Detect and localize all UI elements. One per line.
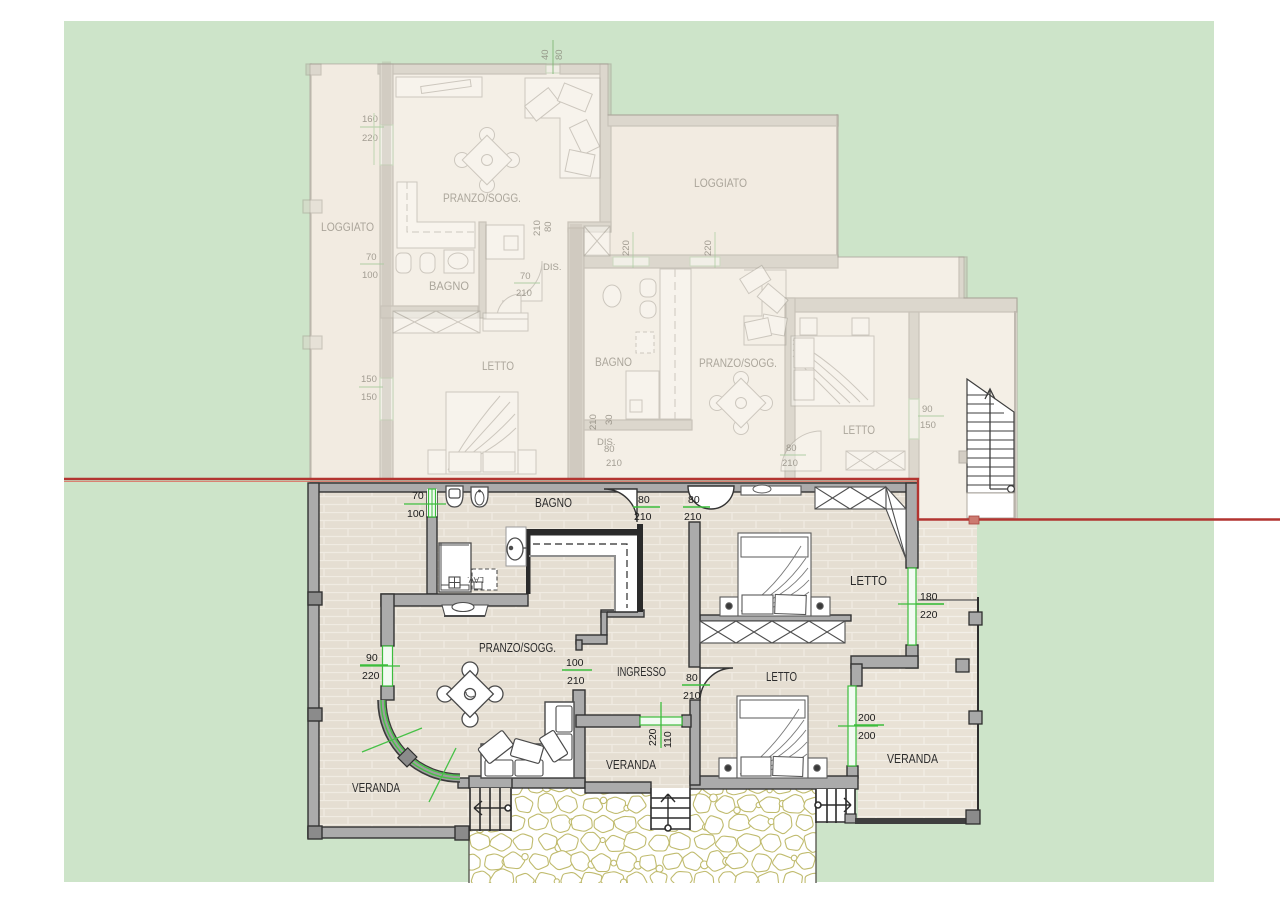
svg-text:40: 40 (540, 49, 551, 60)
svg-text:200: 200 (858, 712, 876, 724)
svg-text:110: 110 (662, 731, 674, 748)
svg-text:80: 80 (686, 672, 698, 684)
svg-text:150: 150 (920, 420, 936, 431)
svg-text:220: 220 (647, 728, 659, 746)
svg-text:BAGNO: BAGNO (429, 279, 469, 293)
svg-text:70: 70 (520, 271, 531, 282)
svg-text:160: 160 (362, 114, 378, 125)
svg-text:LOGGIATO: LOGGIATO (321, 220, 374, 234)
svg-text:210: 210 (634, 511, 652, 523)
svg-text:220: 220 (920, 609, 938, 621)
svg-text:VERANDA: VERANDA (887, 751, 938, 766)
svg-text:100: 100 (407, 508, 425, 520)
svg-text:210: 210 (606, 458, 622, 469)
svg-text:80: 80 (554, 49, 565, 60)
svg-text:220: 220 (703, 240, 714, 256)
svg-text:BAGNO: BAGNO (595, 355, 632, 369)
svg-text:70: 70 (366, 252, 377, 263)
svg-text:220: 220 (621, 240, 632, 256)
svg-text:30: 30 (604, 414, 615, 425)
svg-text:LETTO: LETTO (850, 573, 887, 588)
svg-text:PRANZO/SOGG.: PRANZO/SOGG. (479, 640, 556, 655)
svg-text:PRANZO/SOGG.: PRANZO/SOGG. (443, 191, 521, 205)
svg-text:150: 150 (361, 392, 377, 403)
svg-text:210: 210 (684, 511, 702, 523)
svg-text:220: 220 (362, 670, 380, 682)
svg-text:DIS.: DIS. (543, 262, 561, 273)
svg-text:210: 210 (532, 220, 543, 236)
svg-text:VERANDA: VERANDA (352, 780, 400, 795)
svg-text:VERANDA: VERANDA (606, 757, 656, 772)
svg-text:90: 90 (366, 652, 378, 664)
svg-text:80: 80 (543, 221, 554, 232)
svg-text:210: 210 (683, 690, 701, 702)
svg-text:LAV.: LAV. (467, 575, 484, 585)
svg-text:100: 100 (362, 270, 378, 281)
svg-text:LETTO: LETTO (766, 669, 797, 684)
svg-text:LETTO: LETTO (482, 359, 514, 373)
svg-text:210: 210 (567, 675, 585, 687)
svg-text:180: 180 (920, 591, 938, 603)
svg-text:BAGNO: BAGNO (535, 495, 572, 510)
svg-text:80: 80 (688, 494, 700, 506)
svg-text:90: 90 (922, 404, 933, 415)
svg-text:LOGGIATO: LOGGIATO (694, 176, 747, 190)
svg-text:80: 80 (786, 443, 797, 454)
svg-text:210: 210 (588, 414, 599, 430)
svg-text:LETTO: LETTO (843, 423, 875, 437)
svg-text:150: 150 (361, 374, 377, 385)
svg-text:70: 70 (412, 490, 424, 502)
svg-text:PRANZO/SOGG.: PRANZO/SOGG. (699, 356, 777, 370)
svg-text:210: 210 (782, 458, 798, 469)
svg-text:220: 220 (362, 133, 378, 144)
svg-text:80: 80 (604, 444, 615, 455)
svg-text:100: 100 (566, 657, 584, 669)
svg-text:200: 200 (858, 730, 876, 742)
svg-text:210: 210 (516, 288, 532, 299)
svg-text:INGRESSO: INGRESSO (617, 664, 666, 679)
svg-text:80: 80 (638, 494, 650, 506)
